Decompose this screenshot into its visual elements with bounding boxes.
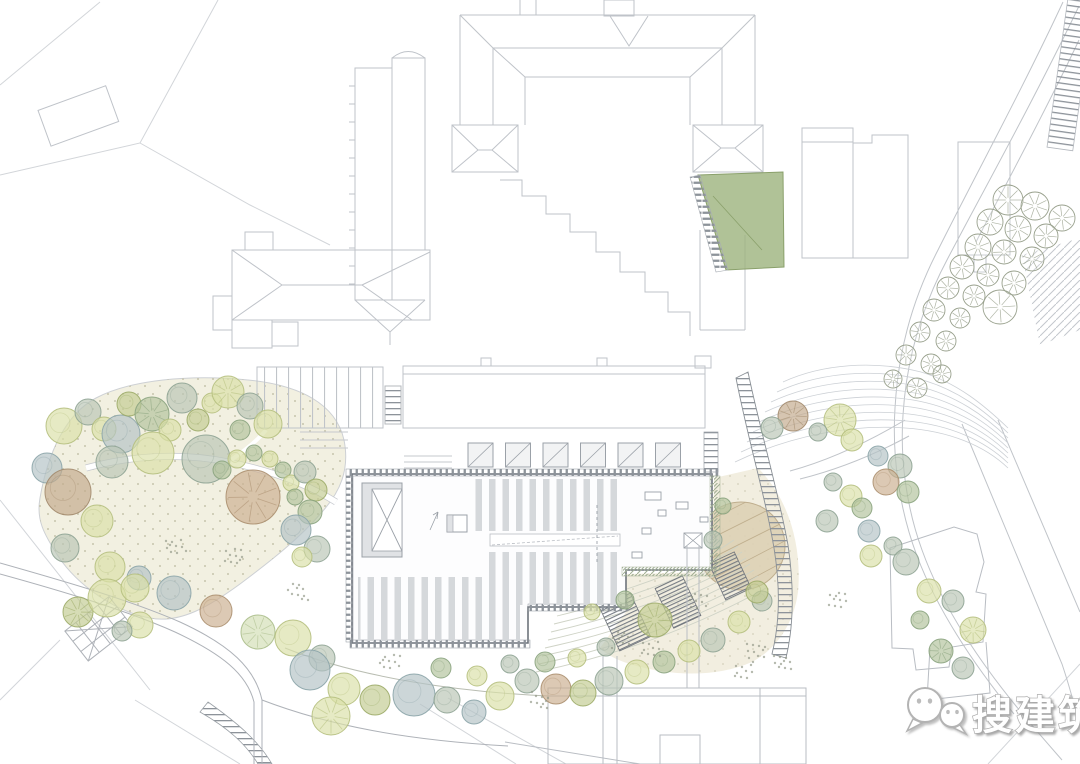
tree — [638, 603, 672, 637]
tree — [897, 481, 919, 503]
tree — [515, 669, 539, 693]
line-tree — [950, 255, 974, 279]
line-tree — [983, 290, 1017, 324]
tree — [809, 423, 827, 441]
tree — [467, 666, 487, 686]
line-tree — [907, 378, 927, 398]
line-tree — [884, 370, 902, 388]
tree — [701, 628, 725, 652]
tree — [678, 640, 700, 662]
tree — [51, 534, 79, 562]
tree — [860, 545, 882, 567]
tree — [226, 470, 280, 524]
tree — [501, 655, 519, 673]
tree — [824, 473, 842, 491]
tree — [761, 417, 783, 439]
tree — [584, 604, 600, 620]
line-tree — [937, 277, 959, 299]
tree — [360, 685, 390, 715]
tree — [541, 674, 571, 704]
tree — [868, 446, 888, 466]
tree — [715, 498, 731, 514]
tree — [852, 498, 872, 518]
tree — [893, 549, 919, 575]
tree — [88, 579, 126, 617]
tree — [653, 651, 675, 673]
tree — [952, 657, 974, 679]
line-tree — [1034, 224, 1058, 248]
line-tree — [933, 365, 951, 383]
line-tree — [992, 240, 1016, 264]
tree — [570, 680, 596, 706]
tree — [157, 576, 191, 610]
tree — [911, 611, 929, 629]
line-tree — [910, 322, 930, 342]
tree — [254, 410, 282, 438]
existing-buildings-linework — [38, 0, 1010, 348]
line-tree — [965, 234, 991, 260]
tree — [292, 547, 312, 567]
tree — [81, 505, 113, 537]
tree — [230, 420, 250, 440]
watermark-text: 搜建筑 — [972, 693, 1080, 739]
tree — [595, 667, 623, 695]
tree — [167, 383, 197, 413]
line-tree — [963, 285, 985, 307]
skylight-row — [468, 443, 681, 467]
tree — [213, 461, 231, 479]
site-plan-page: 搜建筑 — [0, 0, 1080, 764]
wechat-icon — [907, 688, 966, 734]
tree — [95, 552, 125, 582]
tree — [228, 450, 246, 468]
tree — [873, 469, 899, 495]
railway-hatch — [1022, 0, 1080, 345]
small-building — [38, 86, 119, 146]
tree — [431, 658, 451, 678]
tree — [132, 432, 174, 474]
tree — [625, 660, 649, 684]
line-tree — [1005, 216, 1031, 242]
tree — [917, 579, 941, 603]
tree — [241, 615, 275, 649]
tree — [462, 700, 486, 724]
tree — [305, 479, 327, 501]
tree — [393, 674, 435, 716]
tree — [960, 617, 986, 643]
line-tree — [950, 308, 970, 328]
line-tree — [1020, 247, 1044, 271]
tree — [312, 697, 350, 735]
tree — [568, 649, 586, 667]
line-tree — [993, 185, 1023, 215]
line-tree — [977, 209, 1003, 235]
line-tree — [923, 299, 945, 321]
line-tree — [1021, 192, 1049, 220]
line-tree — [977, 264, 999, 286]
tree — [121, 574, 149, 602]
tree — [841, 429, 863, 451]
tree — [281, 515, 311, 545]
tree — [200, 595, 232, 627]
tree — [858, 520, 880, 542]
green-roof-building — [690, 172, 784, 272]
tree — [616, 591, 634, 609]
tree — [262, 451, 278, 467]
tree — [434, 687, 460, 713]
tree — [112, 621, 132, 641]
tree — [535, 652, 555, 672]
tree — [704, 531, 722, 549]
tree — [942, 590, 964, 612]
watermark: 搜建筑 — [907, 688, 1080, 739]
tree — [287, 489, 303, 505]
tree — [929, 639, 953, 663]
tree — [290, 650, 330, 690]
tree — [187, 409, 209, 431]
site-plan-drawing: 搜建筑 — [0, 0, 1080, 764]
tree — [246, 445, 262, 461]
tree — [45, 469, 91, 515]
line-tree — [896, 345, 916, 365]
line-tree — [936, 331, 956, 351]
tree — [816, 510, 838, 532]
tree — [746, 581, 768, 603]
tree — [96, 446, 128, 478]
tree — [486, 682, 514, 710]
tree — [728, 611, 750, 633]
